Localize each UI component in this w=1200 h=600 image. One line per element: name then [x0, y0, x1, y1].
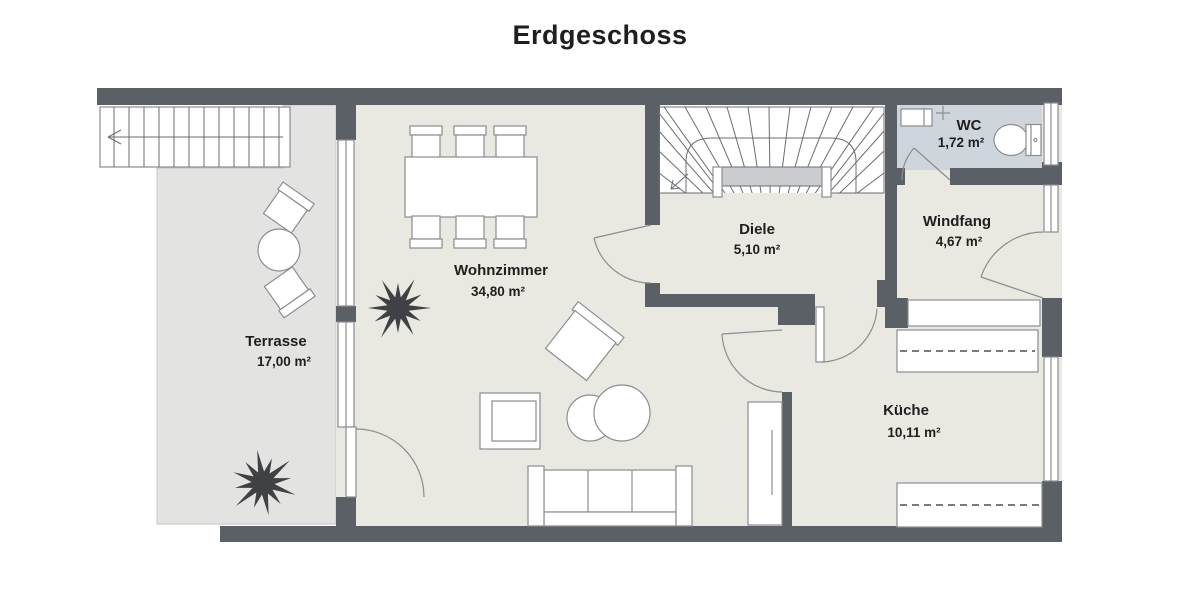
room-diele-area: 5,10 m² [734, 242, 781, 257]
room-wc-area: 1,72 m² [938, 135, 985, 150]
wall-right-c [1042, 481, 1062, 527]
floor-plan-drawing: Erdgeschoss [0, 0, 1200, 600]
dining-chairs-top [410, 126, 526, 158]
room-terrasse-label: Terrasse [245, 333, 306, 350]
wall-left-lower [336, 497, 356, 527]
toilet [994, 125, 1041, 156]
wall-right-b [1042, 298, 1062, 357]
room-windfang-area: 4,67 m² [936, 234, 983, 249]
wall-left-upper [336, 88, 356, 140]
room-wohnzimmer-label: Wohnzimmer [454, 262, 548, 279]
sofa [528, 466, 692, 526]
room-terrasse-area: 17,00 m² [257, 354, 312, 369]
dining-chairs-bottom [410, 216, 526, 248]
terrace-table [258, 229, 300, 271]
wall-left-mullion [336, 306, 356, 322]
dining-set [405, 126, 537, 248]
stair-landing [713, 167, 831, 186]
room-wc-label: WC [957, 117, 982, 134]
stairs-exterior [100, 107, 290, 167]
room-diele-label: Diele [739, 221, 775, 238]
room-windfang-label: Windfang [923, 213, 991, 230]
wall-wc-stub [897, 168, 905, 185]
sink [901, 109, 932, 126]
page-title: Erdgeschoss [512, 20, 687, 50]
wall-bottom [220, 526, 1062, 542]
wall-diele-right [885, 105, 897, 280]
room-wohnzimmer-area: 34,80 m² [471, 284, 526, 299]
wall-hinge-block [778, 294, 815, 325]
floor-plan-page: Erdgeschoss [0, 0, 1200, 600]
armchair-square [480, 393, 540, 449]
wall-top [97, 88, 1062, 105]
room-terrasse-floor [157, 105, 336, 524]
room-kueche-label: Küche [883, 402, 929, 419]
partition-windfang-kitchen [908, 300, 1040, 326]
tall-cabinet [748, 402, 782, 525]
wall-stair-left [645, 105, 660, 225]
dining-table [405, 157, 537, 217]
room-kueche-area: 10,11 m² [887, 425, 941, 440]
wall-kitchen-left [782, 392, 792, 527]
coffee-table-large [594, 385, 650, 441]
wall-wc-bottom [950, 168, 1062, 185]
wall-windfang-block [885, 298, 908, 328]
